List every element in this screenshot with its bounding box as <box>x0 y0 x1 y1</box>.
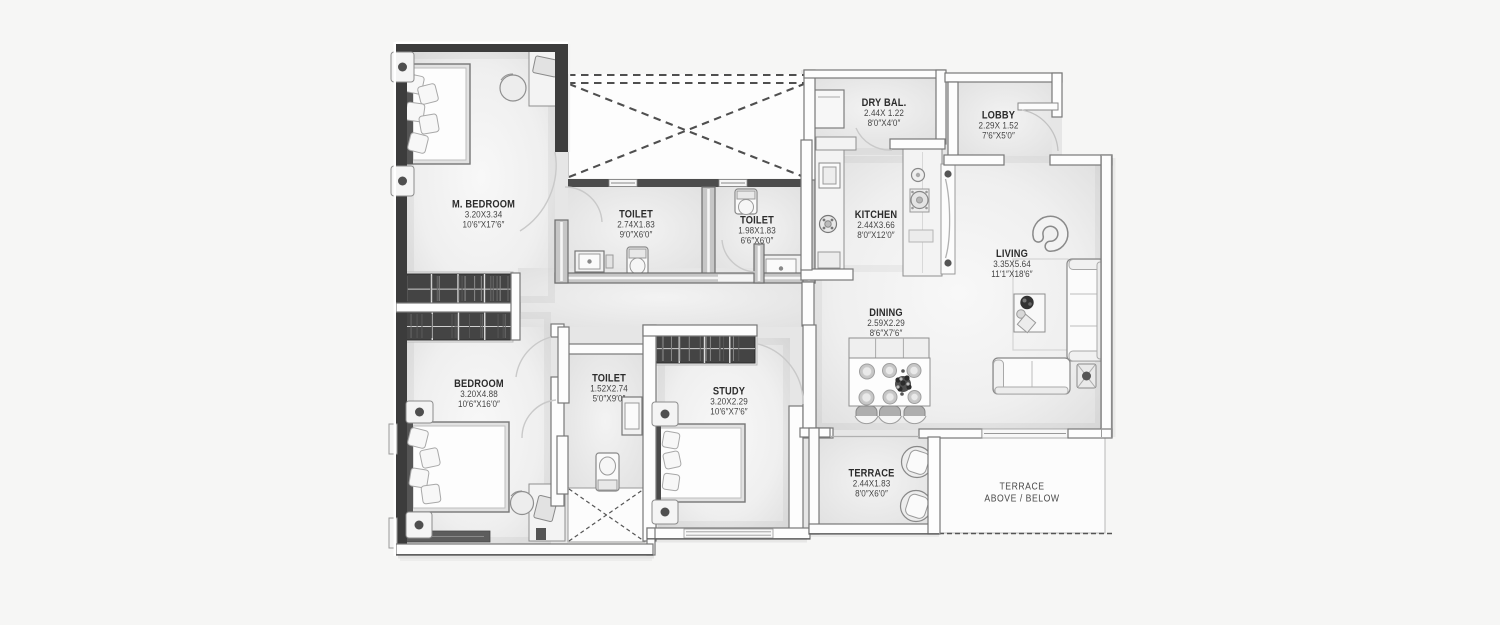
svg-text:11′1″X18′6″: 11′1″X18′6″ <box>991 268 1032 279</box>
svg-text:8′0″X4′0″: 8′0″X4′0″ <box>868 117 901 128</box>
svg-text:5′0″X9′0″: 5′0″X9′0″ <box>593 393 626 404</box>
svg-text:10′6″X7′6″: 10′6″X7′6″ <box>710 406 747 417</box>
svg-text:8′0″X6′0″: 8′0″X6′0″ <box>855 488 888 499</box>
svg-text:8′6″X7′6″: 8′6″X7′6″ <box>870 327 903 338</box>
svg-text:6′6″X6′0″: 6′6″X6′0″ <box>741 235 774 246</box>
svg-text:9′0″X6′0″: 9′0″X6′0″ <box>620 229 653 240</box>
svg-text:10′6″X17′6″: 10′6″X17′6″ <box>463 219 505 230</box>
svg-text:ABOVE / BELOW: ABOVE / BELOW <box>984 492 1059 504</box>
svg-text:8′0″X12′0″: 8′0″X12′0″ <box>857 229 894 240</box>
svg-text:TERRACE: TERRACE <box>999 480 1044 492</box>
svg-text:10′6″X16′0″: 10′6″X16′0″ <box>458 398 500 409</box>
svg-text:7′6″X5′0″: 7′6″X5′0″ <box>982 130 1015 141</box>
